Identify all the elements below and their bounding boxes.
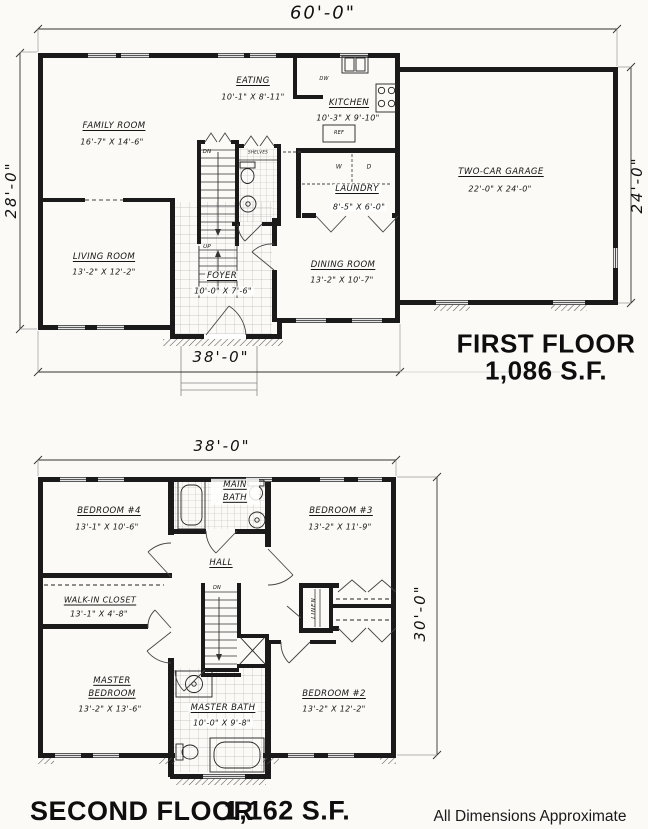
second-floor-area: 1,162 S.F.: [224, 796, 351, 827]
second-floor-stair-treads: [205, 592, 237, 664]
first-floor-tile-floors: [172, 148, 277, 334]
eating-dims: 10'-1" X 8'-11": [221, 93, 284, 102]
second-floor-stair-arrow: [216, 597, 222, 661]
laundry-label: LAUNDRY: [333, 184, 381, 194]
dining-room-dims: 13'-2" X 10'-7": [310, 276, 373, 285]
master-bedroom-label: MASTER BEDROOM: [69, 675, 155, 701]
foyer-label: FOYER: [205, 271, 239, 281]
kitchen-label: KITCHEN: [329, 98, 369, 108]
bedroom2-dims: 13'-2" X 12'-2": [302, 705, 365, 714]
bedroom3-dims: 13'-2" X 11'-9": [308, 523, 371, 532]
family-room-label: FAMILY ROOM: [83, 121, 146, 131]
linen-label: LINEN: [311, 597, 317, 618]
dim-38ft-second: 38'-0": [193, 437, 250, 455]
shelves-label: SHELVES: [248, 150, 268, 155]
bedroom2-label: BEDROOM #2: [302, 689, 366, 699]
laundry-dims: 8'-5" X 6'-0": [331, 203, 387, 212]
dryer-label: D: [367, 164, 372, 171]
refrigerator-label: REF: [334, 130, 344, 136]
stairs-dn-label-first: DN: [203, 149, 212, 155]
dim-24ft: 24'-0": [628, 156, 646, 213]
master-bedroom-dims: 13'-2" X 13'-6": [78, 705, 141, 714]
stairs-up-label-first: UP: [203, 244, 211, 250]
first-floor-walls: [38, 53, 618, 339]
second-floor-title: SECOND FLOOR: [30, 796, 254, 827]
dim-60ft: 60'-0": [290, 3, 356, 24]
bedroom4-dims: 13'-1" X 10'-6": [75, 523, 138, 532]
master-bath-label: MASTER BATH: [189, 703, 258, 713]
living-room-label: LIVING ROOM: [73, 252, 135, 262]
second-floor-door-symbols: [147, 531, 396, 691]
dishwasher-label: DW: [319, 76, 328, 82]
first-floor-area: 1,086 S.F.: [485, 356, 607, 387]
family-room-dims: 16'-7" X 14'-6": [80, 138, 143, 147]
foyer-dims: 10'-0" X 7'-6": [192, 287, 254, 296]
first-floor-windows: [58, 53, 618, 339]
main-bath-label: MAIN BATH: [211, 479, 259, 505]
bedroom3-label: BEDROOM #3: [309, 506, 373, 516]
living-room-dims: 13'-2" X 12'-2": [72, 268, 135, 277]
kitchen-dims: 10'-3" X 9'-10": [316, 114, 379, 123]
garage-label: TWO-CAR GARAGE: [458, 167, 543, 177]
garage-dims: 22'-0" X 24'-0": [468, 185, 531, 194]
stairs-dn-label-second: DN: [213, 585, 221, 591]
hall-label: HALL: [209, 558, 232, 568]
walkin-closet-label: WALK-IN CLOSET: [64, 596, 136, 605]
dining-room-label: DINING ROOM: [311, 260, 376, 270]
washer-label: W: [336, 164, 342, 171]
dimensions-approximate-note: All Dimensions Approximate: [434, 808, 627, 826]
walkin-closet-dims: 13'-1" X 4'-8": [70, 610, 128, 619]
dim-30ft: 30'-0": [411, 584, 429, 641]
dim-28ft: 28'-0": [2, 161, 20, 218]
master-bath-dims: 10'-0" X 9'-8": [191, 719, 253, 728]
dim-38ft-first: 38'-0": [192, 348, 249, 366]
floor-plan-page: 60'-0" 28'-0" 24'-0" 38'-0" FAMILY ROOM …: [0, 0, 648, 829]
eating-label: EATING: [236, 76, 270, 86]
bedroom4-label: BEDROOM #4: [77, 506, 141, 516]
